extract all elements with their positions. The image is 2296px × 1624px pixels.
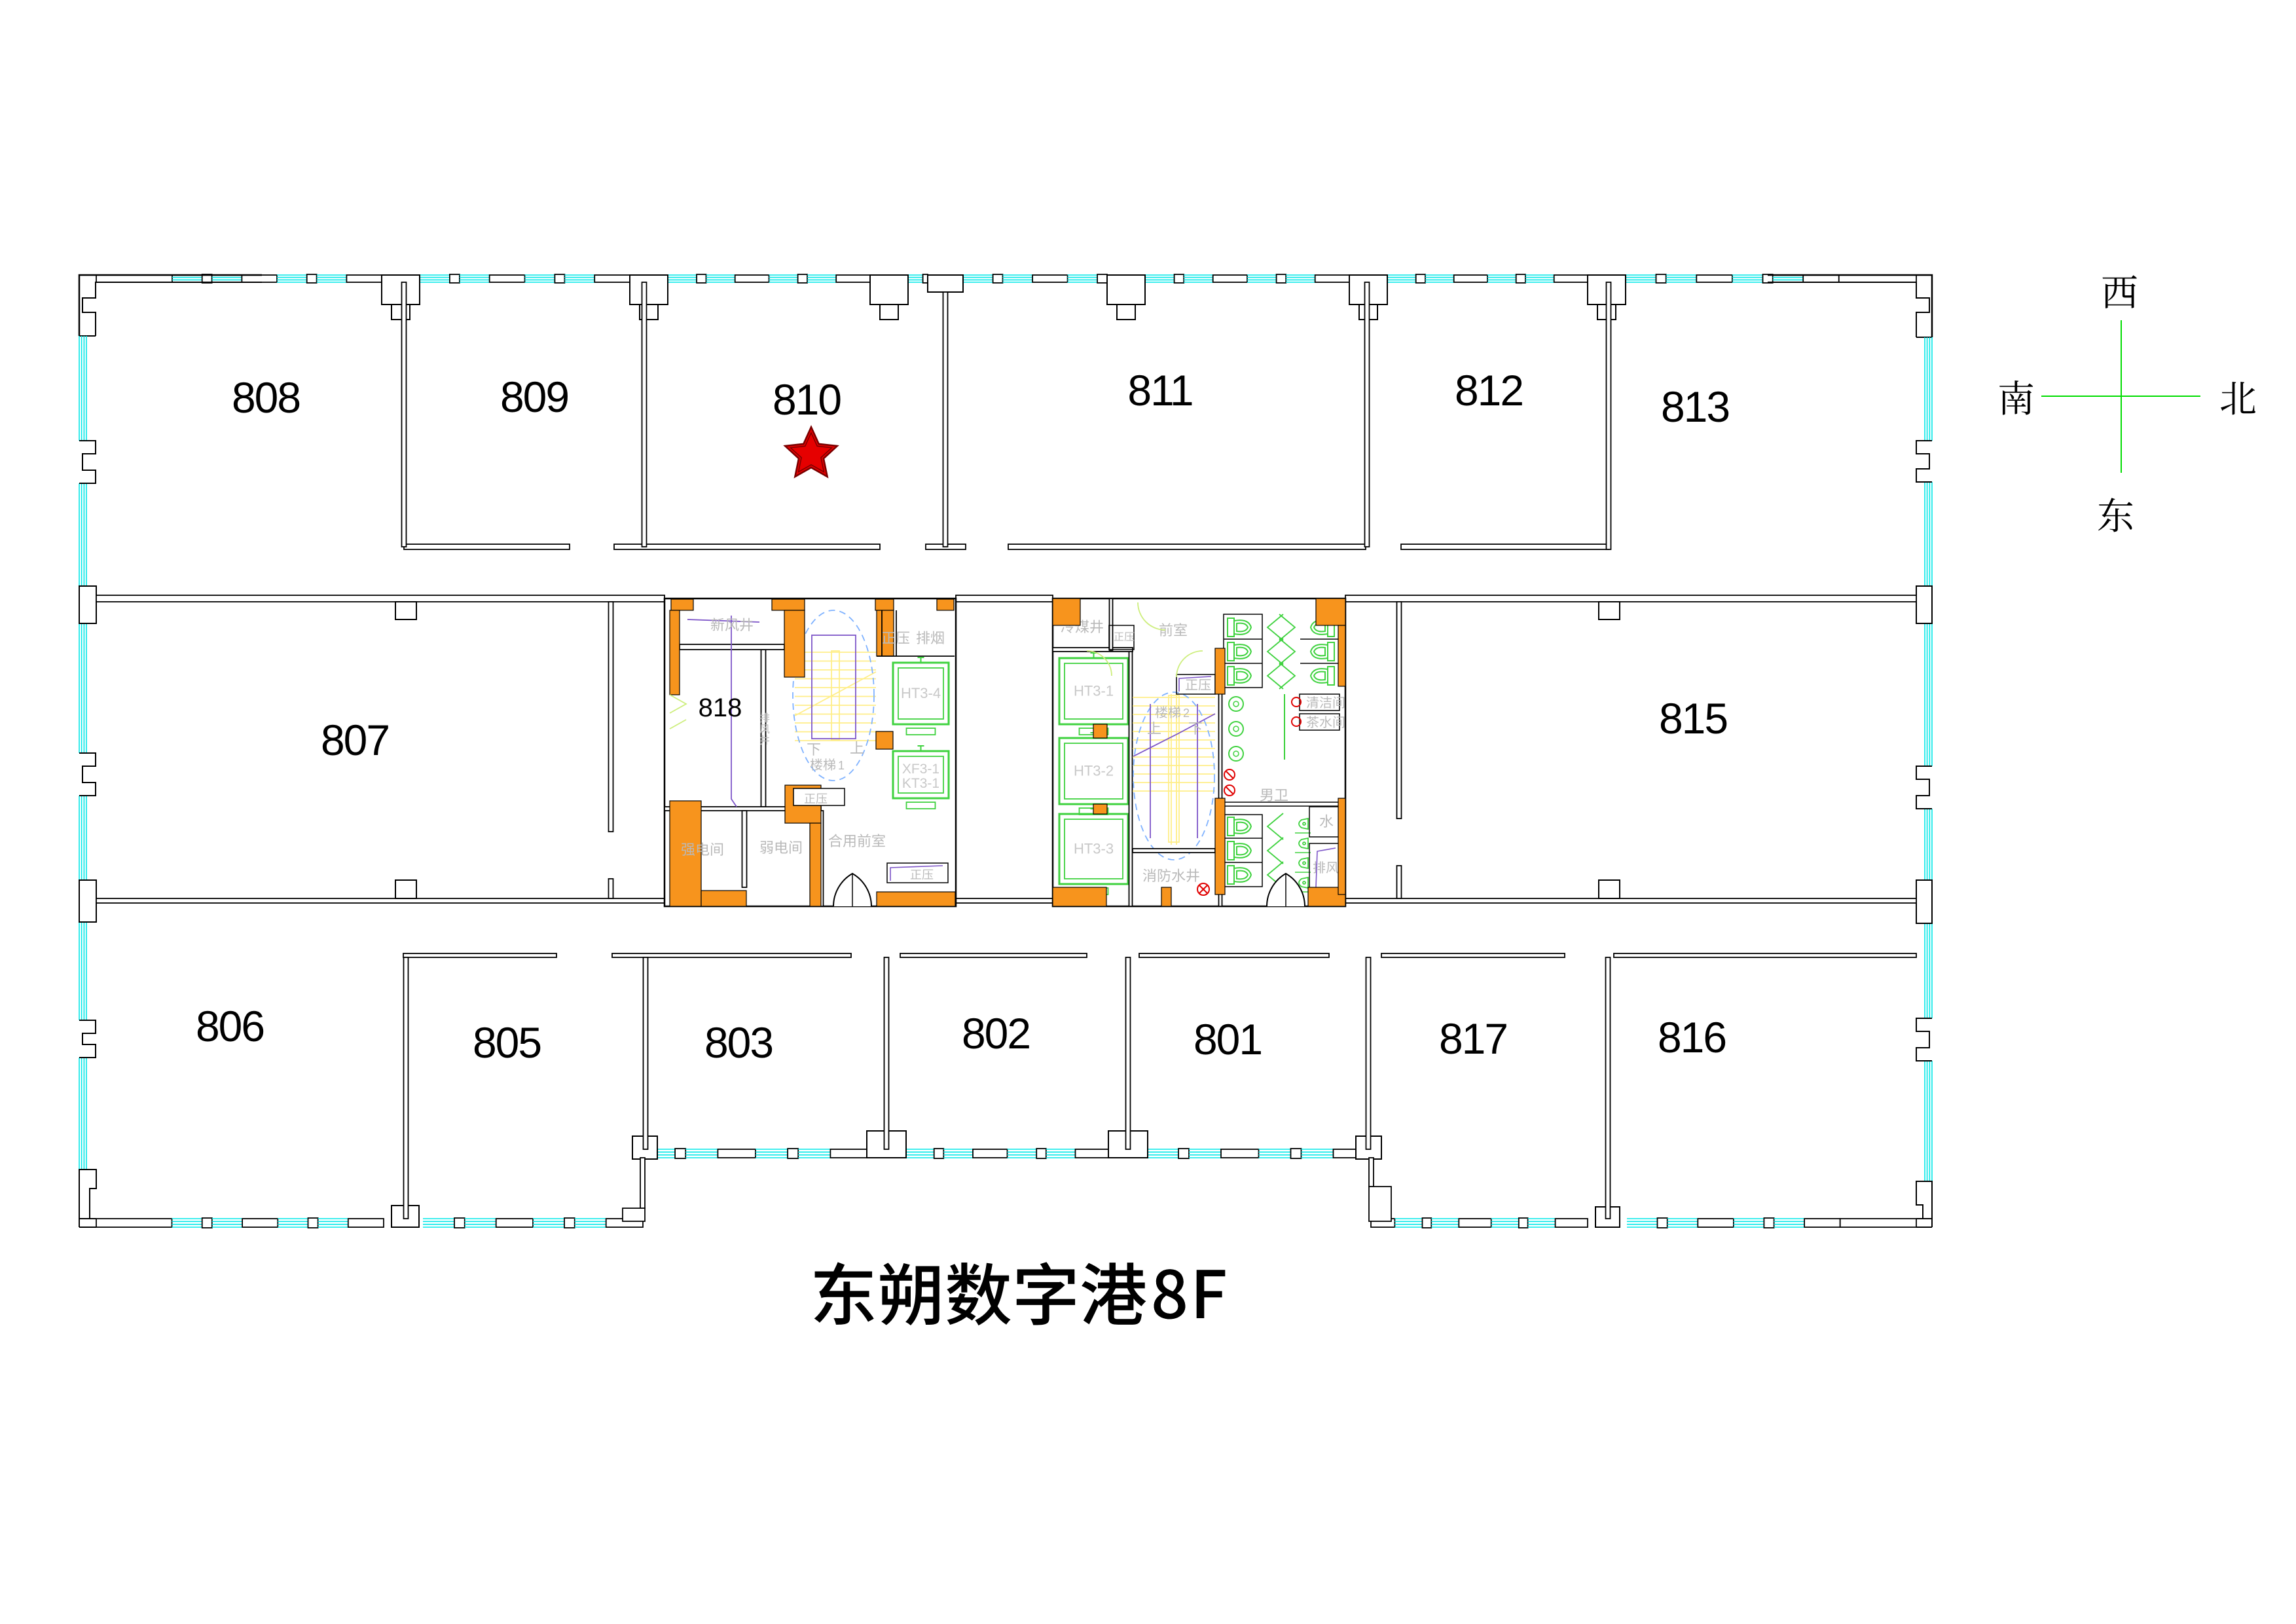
svg-text:HT3-1: HT3-1 <box>1074 683 1114 699</box>
svg-text:808: 808 <box>232 373 300 422</box>
svg-text:KT3-1: KT3-1 <box>902 776 939 791</box>
svg-text:1: 1 <box>838 759 845 772</box>
svg-text:805: 805 <box>473 1018 541 1067</box>
svg-text:801: 801 <box>1194 1015 1262 1063</box>
svg-text:811: 811 <box>1127 366 1192 415</box>
svg-text:803: 803 <box>704 1018 773 1067</box>
svg-text:810: 810 <box>773 375 841 424</box>
svg-text:807: 807 <box>321 716 389 764</box>
svg-text:809: 809 <box>500 373 568 421</box>
svg-text:816: 816 <box>1658 1013 1726 1061</box>
svg-text:813: 813 <box>1661 382 1729 431</box>
svg-text:818: 818 <box>699 693 742 722</box>
svg-text:806: 806 <box>196 1002 264 1050</box>
svg-text:HT3-3: HT3-3 <box>1074 841 1114 857</box>
svg-text:XF3-1: XF3-1 <box>902 762 939 777</box>
svg-text:HT3-2: HT3-2 <box>1074 763 1114 779</box>
svg-text:812: 812 <box>1455 366 1523 415</box>
svg-text:2: 2 <box>1183 707 1190 720</box>
svg-text:817: 817 <box>1439 1014 1507 1063</box>
svg-text:815: 815 <box>1659 694 1727 743</box>
svg-text:HT3-4: HT3-4 <box>901 685 941 701</box>
svg-text:802: 802 <box>962 1009 1030 1058</box>
